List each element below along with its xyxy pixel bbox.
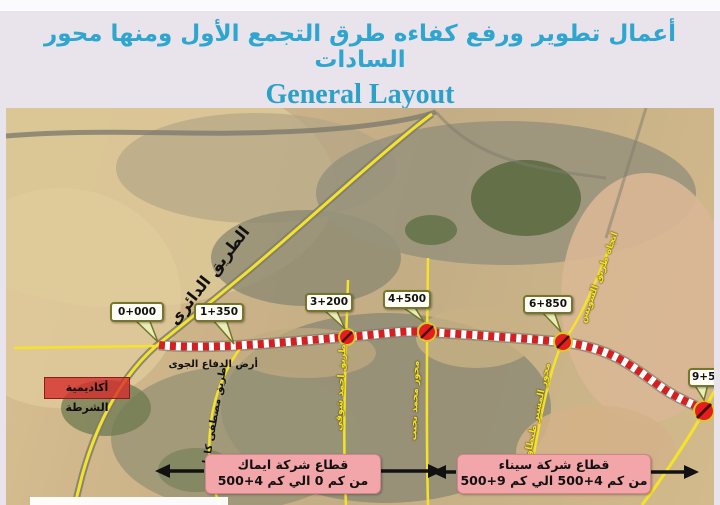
km-marker-3: 4+500 (383, 290, 431, 309)
police-academy-label: أكاديمية الشرطة (44, 377, 130, 399)
sector-emak-name: قطاع شركة ايماك (206, 457, 380, 473)
node-9500 (694, 401, 714, 421)
sector-emak: قطاع شركة ايماك من كم 0 الي كم 4+500 (205, 454, 381, 494)
bottom-white-strip (30, 497, 228, 505)
sector-emak-range: من كم 0 الي كم 4+500 (206, 473, 380, 489)
top-white-strip (0, 0, 720, 11)
node-4500 (418, 323, 436, 341)
node-6850 (554, 333, 572, 351)
km-marker-4: 6+850 (523, 295, 573, 314)
page-title-arabic: أعمال تطوير ورفع كفاءه طرق التجمع الأول … (0, 21, 720, 73)
page: { "header": { "title_ar": "أعمال تطوير و… (0, 0, 720, 505)
sector-sinai-name: قطاع شركة سيناء (458, 457, 650, 473)
sector-sinai: قطاع شركة سيناء من كم 4+500 الي كم 9+500 (457, 454, 651, 494)
km-marker-1: 1+350 (194, 303, 244, 322)
air-defense-label: أرض الدفاع الجوى (174, 359, 258, 370)
page-title-english: General Layout (0, 79, 720, 111)
sector-sinai-range: من كم 4+500 الي كم 9+500 (458, 473, 650, 489)
km-marker-2: 3+200 (305, 293, 353, 312)
header: أعمال تطوير ورفع كفاءه طرق التجمع الأول … (0, 11, 720, 108)
satellite-map: الطريق الدائرى أرض الدفاع الجوى أكاديمية… (6, 108, 714, 505)
km-marker-5: 9+500 (688, 368, 714, 387)
km-marker-0: 0+000 (110, 302, 164, 322)
